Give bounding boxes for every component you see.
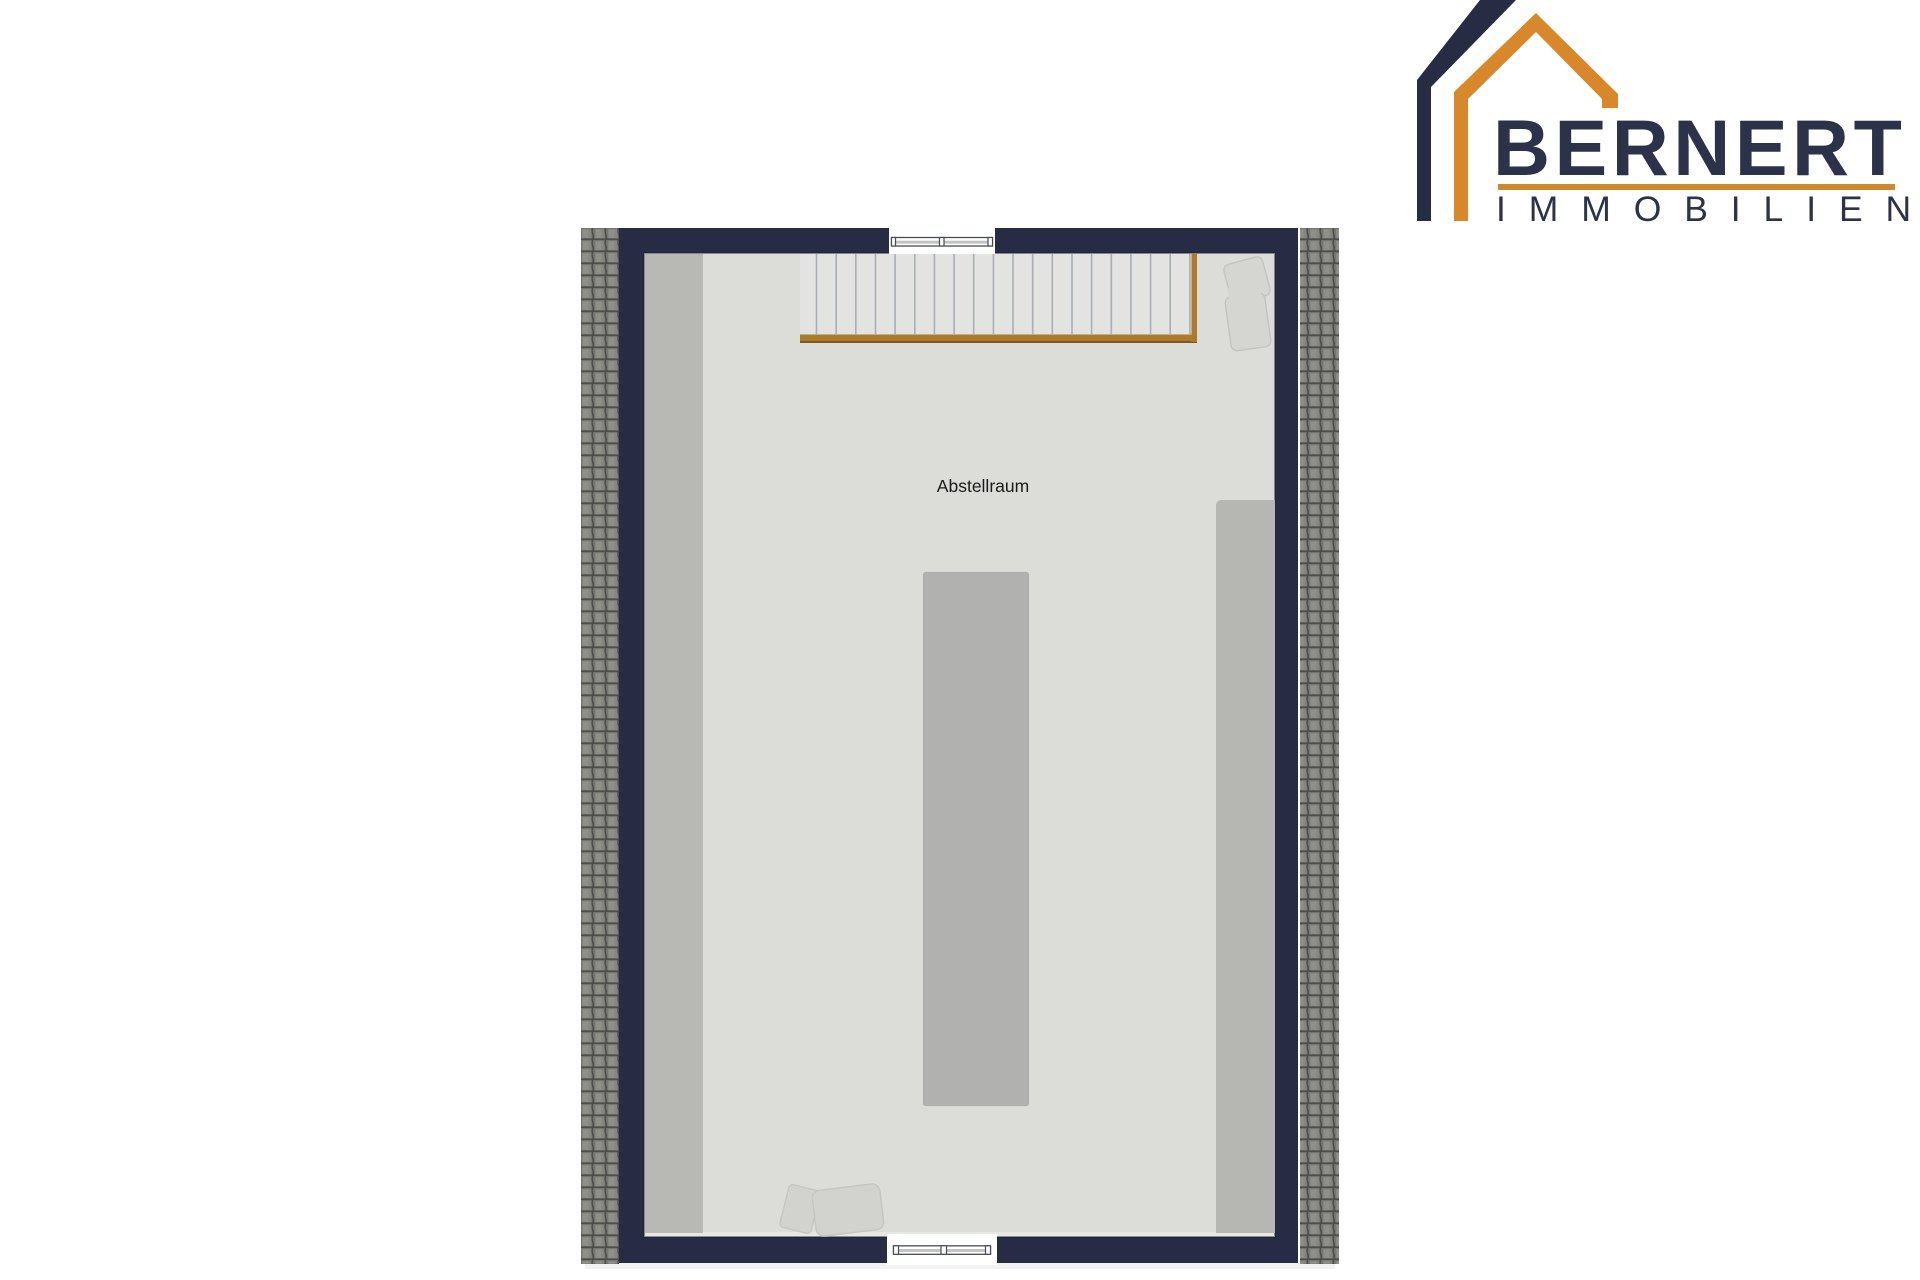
svg-text:IMMOBILIEN: IMMOBILIEN: [1496, 189, 1920, 229]
svg-text:BERNERT: BERNERT: [1493, 103, 1906, 192]
svg-text:Abstellraum: Abstellraum: [937, 476, 1029, 496]
